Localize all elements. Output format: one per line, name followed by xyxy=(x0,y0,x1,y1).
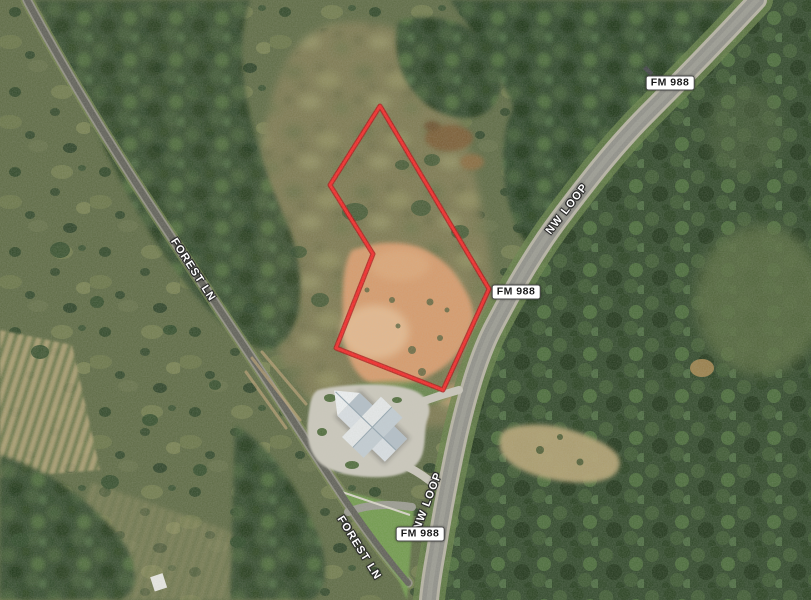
road-shield-fm988-top: FM 988 xyxy=(646,76,695,91)
satellite-map[interactable]: FM 988 NW LOOP FM 988 NW LOOP FM 988 FOR… xyxy=(0,0,811,600)
road-shield-fm988-mid: FM 988 xyxy=(492,285,541,300)
road-shield-fm988-bottom: FM 988 xyxy=(396,527,445,542)
